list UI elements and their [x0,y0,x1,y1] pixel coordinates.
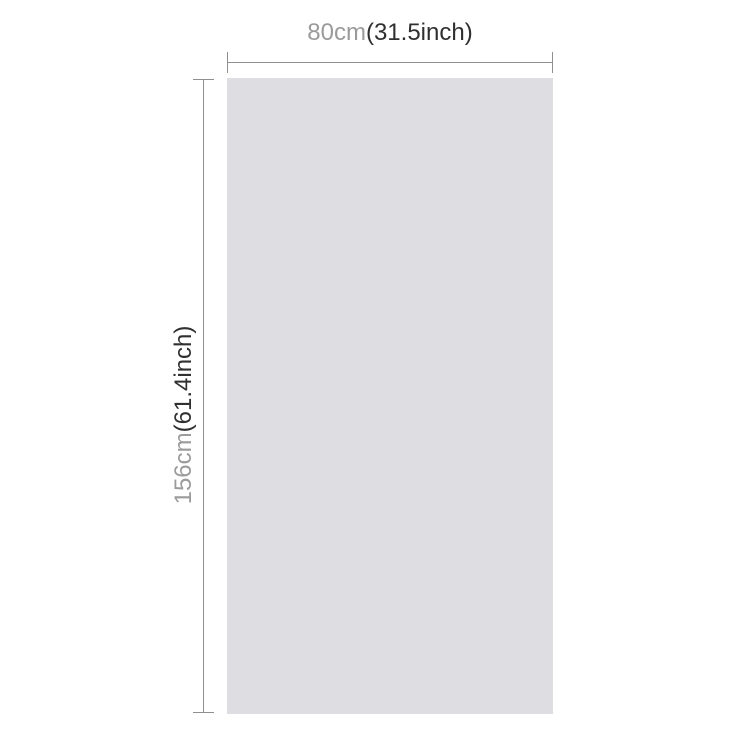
height-metric-text: 156cm [170,432,197,504]
height-dimension-tick-bottom [193,712,214,713]
width-dimension-line [227,62,553,63]
height-imperial-text: (61.4inch) [170,326,197,433]
width-dimension-tick-left [227,52,228,73]
width-dimension-tick-right [552,52,553,73]
width-imperial-text: (31.5inch) [366,19,473,46]
width-dimension-label: 80cm(31.5inch) [227,21,553,45]
product-dimension-diagram: 80cm(31.5inch) 156cm(61.4inch) [0,0,750,750]
height-dimension-line [203,79,204,713]
width-metric-text: 80cm [307,19,366,46]
height-dimension-label: 156cm(61.4inch) [172,326,196,505]
height-dimension-tick-top [193,79,214,80]
product-swatch [227,78,553,714]
